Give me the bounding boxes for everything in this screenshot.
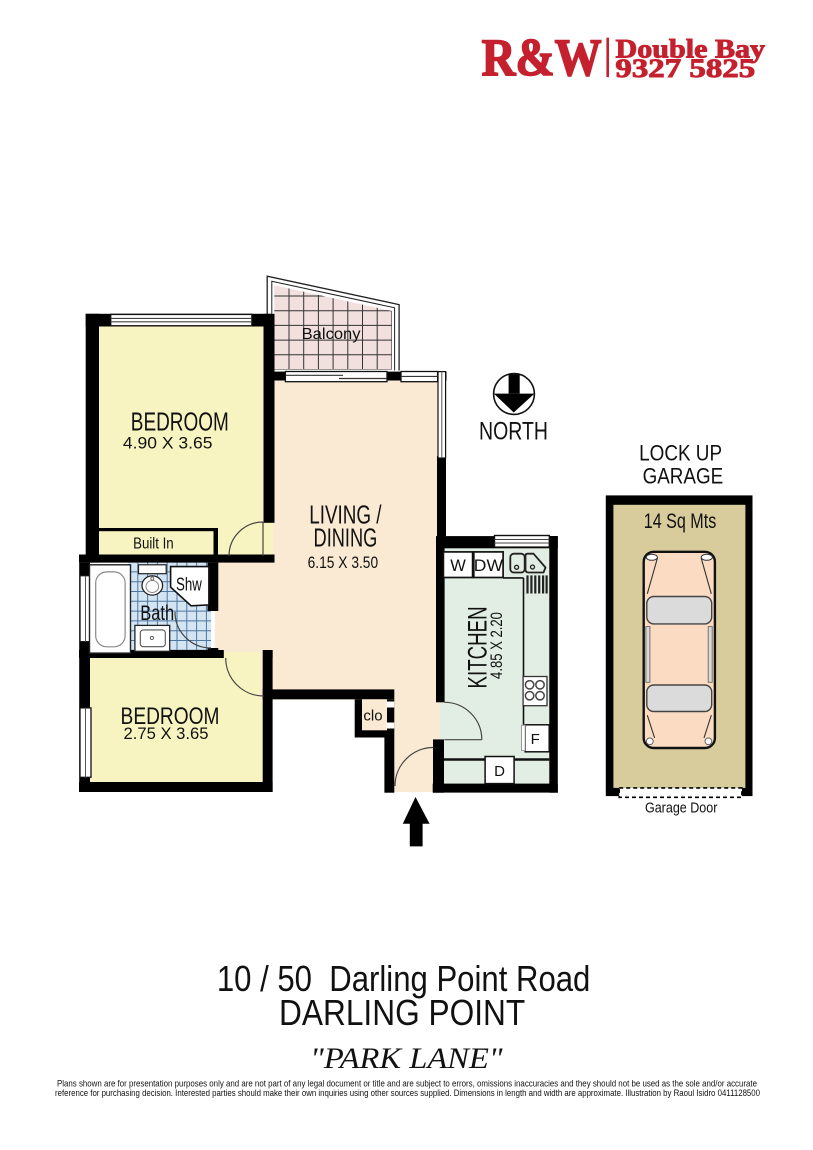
svg-text:F: F bbox=[531, 731, 540, 748]
svg-text:reference for purchasing decis: reference for purchasing decision. Inter… bbox=[55, 1088, 760, 1098]
svg-text:6.15 X 3.50: 6.15 X 3.50 bbox=[308, 553, 379, 572]
svg-text:"PARK LANE": "PARK LANE" bbox=[310, 1042, 503, 1075]
svg-text:R&W: R&W bbox=[482, 29, 602, 87]
svg-text:DARLING POINT: DARLING POINT bbox=[279, 992, 525, 1033]
svg-text:Bath: Bath bbox=[140, 602, 174, 625]
svg-text:4.85 X 2.20: 4.85 X 2.20 bbox=[487, 612, 506, 679]
svg-text:Balcony: Balcony bbox=[302, 326, 361, 343]
svg-text:DW: DW bbox=[474, 557, 504, 575]
svg-text:D: D bbox=[494, 763, 505, 780]
svg-text:W: W bbox=[450, 557, 466, 575]
svg-text:Shw: Shw bbox=[176, 575, 203, 595]
svg-text:4.90 X 3.65: 4.90 X 3.65 bbox=[123, 434, 213, 452]
svg-text:14 Sq Mts: 14 Sq Mts bbox=[644, 509, 717, 533]
svg-text:BEDROOM: BEDROOM bbox=[131, 406, 229, 436]
svg-text:2.75 X 3.65: 2.75 X 3.65 bbox=[124, 725, 209, 743]
svg-text:NORTH: NORTH bbox=[479, 417, 548, 445]
svg-text:Plans shown are for presentati: Plans shown are for presentation purpose… bbox=[57, 1079, 757, 1089]
svg-text:LOCK UP: LOCK UP bbox=[639, 440, 722, 465]
svg-text:Built In: Built In bbox=[133, 536, 174, 553]
svg-text:DINING: DINING bbox=[314, 523, 378, 553]
svg-text:Garage Door: Garage Door bbox=[645, 799, 718, 816]
svg-text:clo: clo bbox=[363, 708, 382, 725]
svg-text:9327 5825: 9327 5825 bbox=[615, 54, 755, 83]
svg-text:GARAGE: GARAGE bbox=[643, 464, 724, 489]
